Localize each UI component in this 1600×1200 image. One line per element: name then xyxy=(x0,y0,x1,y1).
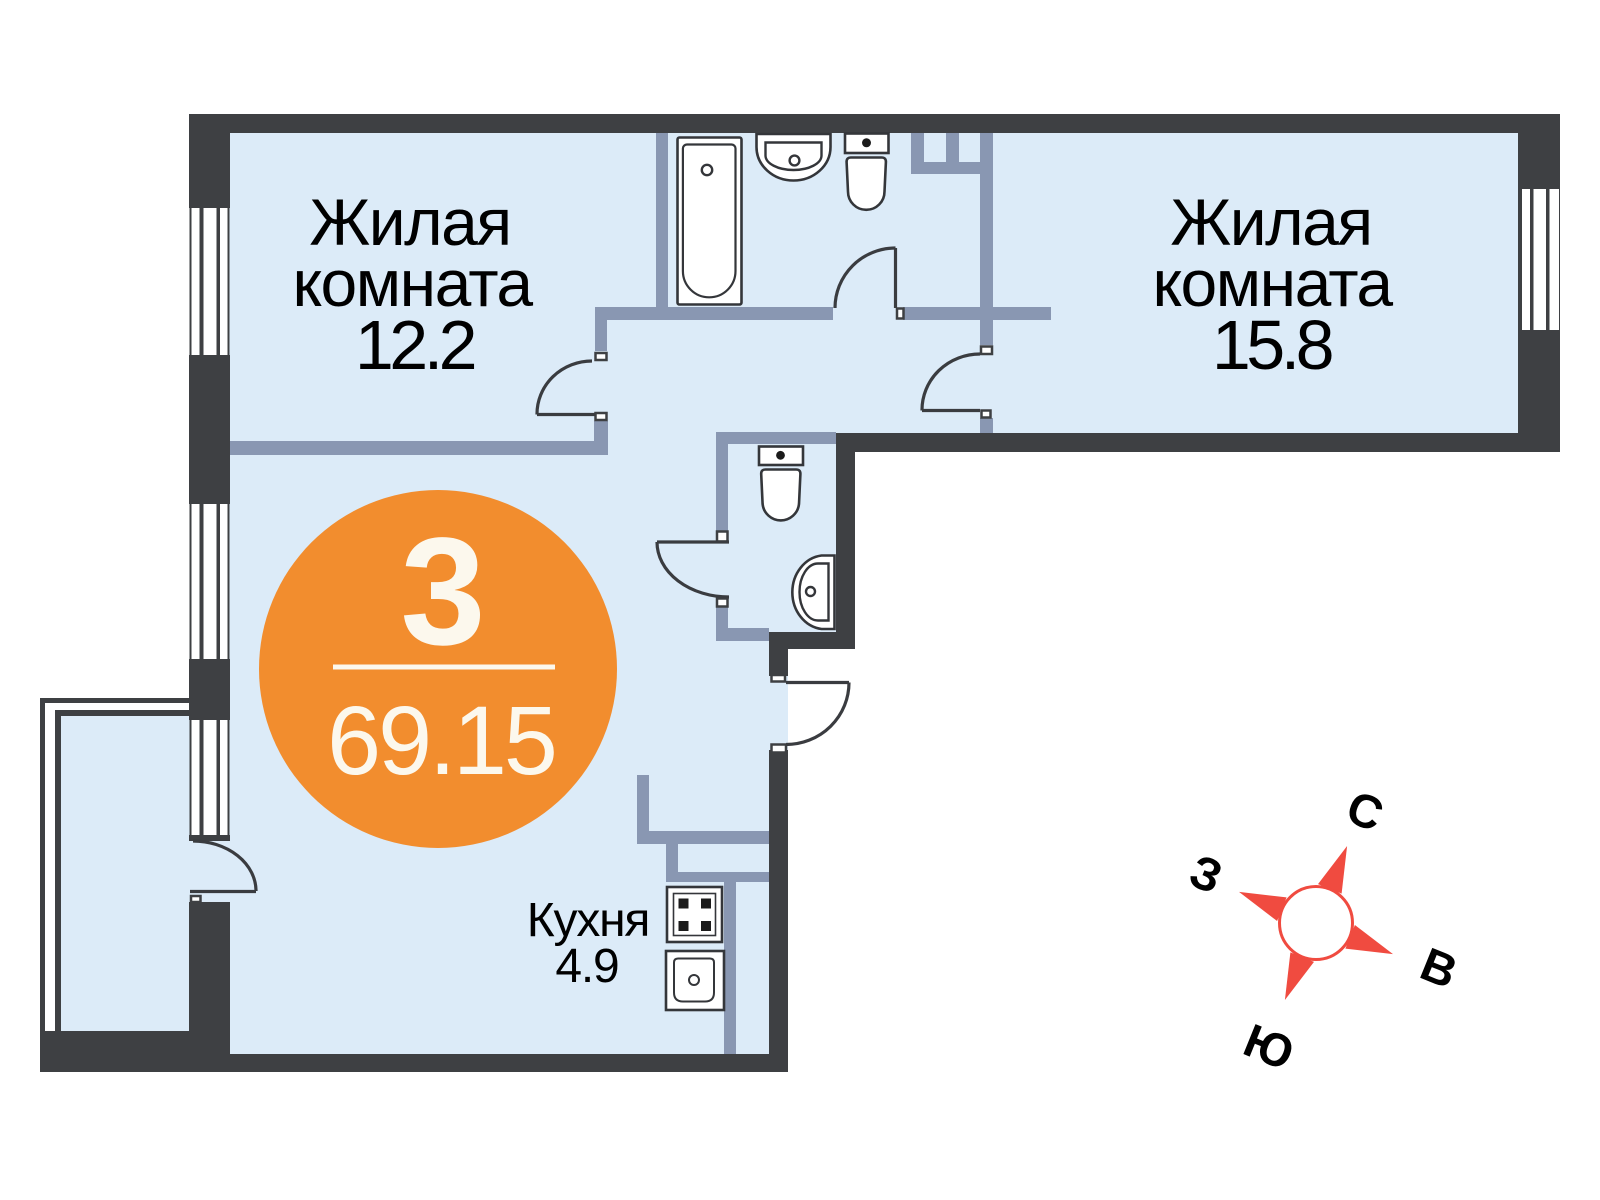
svg-text:4.9: 4.9 xyxy=(555,940,618,993)
svg-text:15.8: 15.8 xyxy=(1212,306,1332,384)
svg-text:12.2: 12.2 xyxy=(355,306,475,384)
svg-text:69.15: 69.15 xyxy=(327,686,555,795)
svg-text:3: 3 xyxy=(400,506,485,677)
